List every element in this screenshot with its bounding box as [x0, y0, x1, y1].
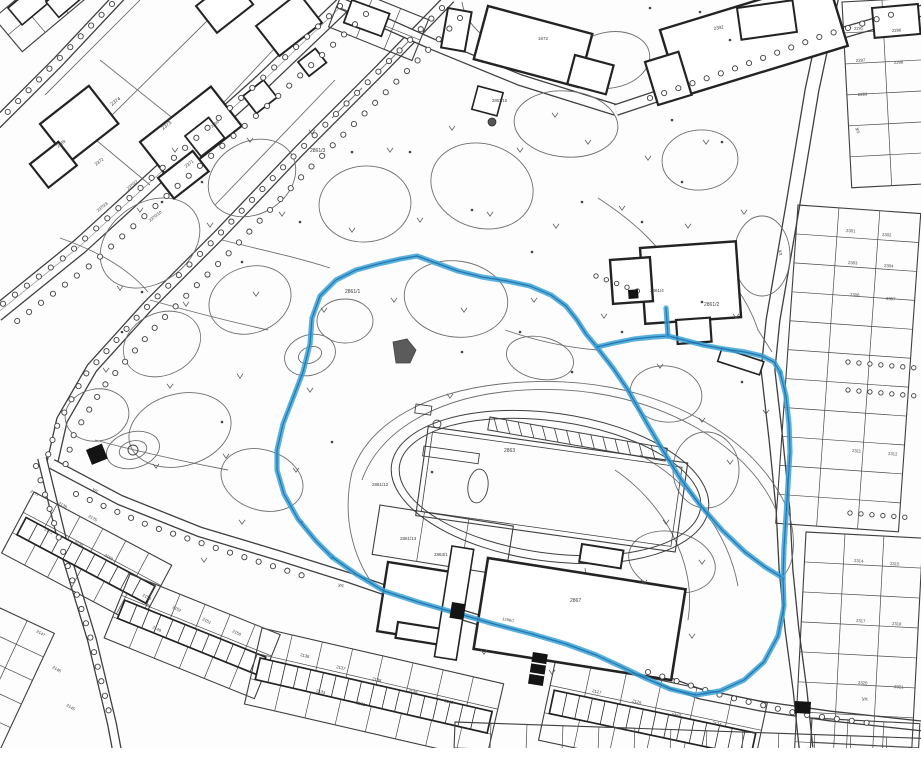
tree-icon [123, 359, 128, 364]
tree-dot-icon [141, 291, 144, 294]
tree-icon [33, 463, 38, 468]
tree-icon [68, 45, 73, 50]
black-structure [794, 701, 811, 714]
tree-icon [138, 185, 143, 190]
tree-icon [50, 437, 55, 442]
tree-dot-icon [221, 421, 224, 424]
tree-icon [676, 86, 681, 91]
parcel-number-label: 2307 [886, 296, 896, 302]
parcel-number-label: 2861/4 [650, 288, 664, 293]
parcel-number-label: 2315 [890, 561, 900, 567]
tree-icon [373, 100, 378, 105]
tree-icon [859, 512, 863, 516]
parcel-number-label: 2301 [846, 228, 856, 234]
black-structure [628, 289, 639, 299]
parcel-number-label: 2296 [892, 27, 902, 33]
parcel-number-label: 2311 [852, 448, 862, 453]
tree-icon [283, 55, 288, 60]
tree-icon [226, 251, 231, 256]
tree-icon [912, 366, 916, 370]
tree-icon [128, 515, 133, 520]
tree-icon [404, 68, 409, 73]
tree-icon [62, 282, 67, 287]
tree-icon [270, 564, 275, 569]
parcel-number-label: 2861/2 [704, 302, 720, 308]
parcel-number-label: 2304 [884, 263, 894, 269]
tree-icon [890, 392, 894, 396]
tree-icon [152, 325, 157, 330]
tree-icon [320, 153, 325, 158]
tree-icon [205, 272, 210, 277]
tree-icon [87, 497, 92, 502]
tree-icon [95, 664, 100, 669]
tree-icon [363, 11, 368, 16]
tree-icon [12, 292, 17, 297]
tree-icon [341, 32, 346, 37]
tree-dot-icon [701, 301, 704, 304]
tree-icon [253, 113, 258, 118]
tree-icon [142, 521, 147, 526]
tree-icon [298, 73, 303, 78]
tree-icon [124, 326, 129, 331]
tree-icon [84, 371, 89, 376]
tree-icon [397, 48, 402, 53]
tree-icon [281, 165, 286, 170]
tree-icon [819, 714, 824, 719]
tree-icon [331, 42, 336, 47]
tree-icon [5, 109, 10, 114]
tree-icon [65, 563, 70, 568]
tree-icon [352, 22, 357, 27]
tree-icon [408, 37, 413, 42]
tree-icon [315, 24, 320, 29]
tree-icon [149, 175, 154, 180]
tree-icon [775, 50, 780, 55]
tree-icon [56, 535, 61, 540]
tree-icon [846, 360, 850, 364]
tree-icon [260, 186, 265, 191]
tree-icon [337, 3, 342, 8]
tree-icon [88, 635, 93, 640]
tree-icon [197, 251, 202, 256]
tree-icon [69, 397, 74, 402]
tree-icon [604, 278, 608, 282]
tree-dot-icon [671, 119, 674, 122]
tree-icon [351, 121, 356, 126]
tree-icon [309, 164, 314, 169]
tree-icon [209, 153, 214, 158]
tree-icon [171, 155, 176, 160]
tree-icon [120, 234, 125, 239]
tree-icon [326, 14, 331, 19]
tree-icon [106, 708, 111, 713]
tree-icon [341, 132, 346, 137]
tree-icon [42, 492, 47, 497]
tree-icon [879, 363, 883, 367]
tree-icon [288, 186, 293, 191]
tree-icon [94, 226, 99, 231]
tree-icon [236, 240, 241, 245]
tree-icon [0, 301, 5, 306]
tree-icon [187, 262, 192, 267]
tree-icon [50, 291, 55, 296]
tree-icon [155, 294, 160, 299]
parcel-number-label: 2863/1 [434, 552, 448, 557]
tree-icon [218, 230, 223, 235]
tree-icon [890, 364, 894, 368]
tree-icon [153, 203, 158, 208]
tree-icon [103, 382, 108, 387]
tree-dot-icon [581, 201, 584, 204]
tree-icon [71, 246, 76, 251]
tree-dot-icon [699, 11, 702, 14]
tree-icon [208, 241, 213, 246]
tree-icon [488, 118, 496, 126]
tree-icon [63, 461, 68, 466]
tree-icon [239, 95, 244, 100]
tree-icon [94, 360, 99, 365]
tree-icon [97, 254, 102, 259]
tree-icon [287, 83, 292, 88]
tree-icon [746, 61, 751, 66]
tree-icon [74, 273, 79, 278]
tree-icon [645, 669, 650, 674]
tree-icon [250, 85, 255, 90]
building-footprint [737, 0, 797, 39]
tree-icon [171, 531, 176, 536]
utility-building [628, 289, 639, 299]
tree-icon [24, 283, 29, 288]
tree-icon [625, 285, 629, 289]
tree-icon [102, 693, 107, 698]
tree-icon [104, 349, 109, 354]
tree-dot-icon [571, 371, 574, 374]
tree-dot-icon [331, 441, 334, 444]
tree-icon [164, 193, 169, 198]
tree-icon [183, 145, 188, 150]
tree-icon [731, 696, 736, 701]
tree-dot-icon [351, 151, 354, 154]
tree-icon [166, 283, 171, 288]
parcel-number-label: 2861/10 [492, 98, 508, 103]
tree-icon [60, 256, 65, 261]
tree-icon [849, 718, 854, 723]
tree-icon [265, 103, 270, 108]
tree-icon [294, 44, 299, 49]
tree-icon [674, 678, 679, 683]
tree-icon [26, 88, 31, 93]
tree-icon [127, 195, 132, 200]
tree-dot-icon [641, 221, 644, 224]
tree-icon [194, 135, 199, 140]
parcel-number-label: ул. [854, 127, 861, 135]
tree-icon [95, 394, 100, 399]
tree-icon [261, 75, 266, 80]
tree-dot-icon [161, 201, 164, 204]
tree-icon [868, 362, 872, 366]
tree-icon [761, 703, 766, 708]
tree-icon [175, 183, 180, 188]
tree-icon [662, 90, 667, 95]
tree-icon [901, 393, 905, 397]
tree-icon [418, 27, 423, 32]
tree-icon [365, 80, 370, 85]
parcel-number-label: 2306 [850, 292, 860, 298]
tree-dot-icon [409, 151, 412, 154]
tree-icon [116, 206, 121, 211]
tree-icon [229, 219, 234, 224]
tree-icon [429, 16, 434, 21]
tree-icon [439, 5, 444, 10]
tree-icon [215, 261, 220, 266]
scan-bottom-margin [0, 748, 921, 768]
tree-icon [231, 133, 236, 138]
tree-icon [320, 52, 325, 57]
tree-icon [83, 621, 88, 626]
tree-icon [857, 361, 861, 365]
tree-icon [845, 25, 850, 30]
tree-icon [62, 410, 67, 415]
tree-icon [197, 163, 202, 168]
parcel-number-label: 2861/1 [345, 289, 361, 295]
tree-icon [846, 388, 850, 392]
tree-icon [386, 58, 391, 63]
tree-dot-icon [121, 331, 124, 334]
tree-icon [78, 34, 83, 39]
tree-icon [864, 720, 869, 725]
tree-icon [114, 337, 119, 342]
tree-icon [249, 197, 254, 202]
tree-icon [660, 674, 665, 679]
parcel-number-label: 2861/12 [372, 482, 389, 487]
tree-icon [47, 506, 52, 511]
tree-icon [330, 143, 335, 148]
tree-dot-icon [471, 209, 474, 212]
tree-icon [415, 58, 420, 63]
tree-icon [160, 165, 165, 170]
tree-icon [131, 224, 136, 229]
tree-icon [299, 175, 304, 180]
tree-icon [879, 391, 883, 395]
tree-icon [27, 309, 32, 314]
tree-icon [276, 93, 281, 98]
tree-icon [105, 216, 110, 221]
parcel-number-label: 2299 [858, 91, 868, 97]
tree-icon [323, 122, 328, 127]
parcel-number-label: 2318 [892, 621, 902, 627]
tree-icon [426, 47, 431, 52]
parcel-number-label: 2298 [894, 59, 904, 65]
tree-icon [857, 389, 861, 393]
tree-dot-icon [461, 351, 464, 354]
tree-icon [79, 606, 84, 611]
parcel-number-label: 2302 [882, 232, 892, 238]
parcel-number-label: 2303 [848, 260, 858, 266]
tree-icon [355, 90, 360, 95]
tree-icon [73, 491, 78, 496]
tree-icon [36, 274, 41, 279]
tree-icon [688, 683, 693, 688]
cadastral-map-image: 2861/12861/32861/22861/428632861/122861/… [0, 0, 921, 768]
tree-icon [257, 218, 262, 223]
tree-icon [870, 513, 874, 517]
tree-icon [242, 123, 247, 128]
tree-icon [848, 511, 852, 515]
building-footprint [640, 241, 741, 324]
tree-icon [892, 514, 896, 518]
tree-icon [173, 304, 178, 309]
tree-icon [176, 273, 181, 278]
tree-icon [199, 541, 204, 546]
tree-icon [647, 95, 652, 100]
tree-icon [247, 229, 252, 234]
tree-icon [89, 23, 94, 28]
tree-icon [436, 37, 441, 42]
tree-dot-icon [431, 471, 434, 474]
tree-icon [834, 716, 839, 721]
tree-icon [142, 214, 147, 219]
tree-icon [76, 384, 81, 389]
tree-icon [775, 706, 780, 711]
tree-icon [305, 34, 310, 39]
tree-icon [901, 365, 905, 369]
parcel-number-label: 2321 [894, 684, 904, 690]
tree-icon [74, 592, 79, 597]
tree-icon [156, 526, 161, 531]
tree-icon [690, 81, 695, 86]
parcel-number-label: 2314 [854, 558, 864, 564]
tree-dot-icon [299, 221, 302, 224]
tree-icon [817, 34, 822, 39]
tree-dot-icon [741, 381, 744, 384]
parcel-number-label: ул. [777, 250, 783, 257]
tree-icon [888, 12, 893, 17]
tree-icon [47, 66, 52, 71]
tree-icon [115, 509, 120, 514]
tree-icon [142, 337, 147, 342]
tree-icon [134, 315, 139, 320]
tree-icon [57, 55, 62, 60]
parcel-number-label: 1672 [538, 36, 549, 41]
tree-icon [299, 573, 304, 578]
tree-icon [912, 394, 916, 398]
parcel-number-label: 2320 [858, 680, 868, 686]
tree-icon [790, 710, 795, 715]
tree-icon [868, 390, 872, 394]
tree-icon [272, 65, 277, 70]
tree-icon [71, 433, 76, 438]
parcel-number-label: 2295 [854, 25, 864, 31]
tree-icon [99, 679, 104, 684]
tree-dot-icon [201, 181, 204, 184]
tree-icon [761, 55, 766, 60]
parcel-number-label: 2861/13 [400, 536, 417, 541]
tree-icon [213, 545, 218, 550]
tree-icon [457, 15, 462, 20]
tree-icon [278, 196, 283, 201]
tree-dot-icon [729, 39, 732, 42]
tree-icon [113, 370, 118, 375]
tree-dot-icon [649, 7, 652, 10]
tree-icon [36, 77, 41, 82]
tree-icon [52, 521, 57, 526]
parcel-number-label: ул. [862, 696, 869, 703]
tree-icon [132, 348, 137, 353]
tree-icon [746, 699, 751, 704]
tree-icon [91, 650, 96, 655]
tree-icon [242, 555, 247, 560]
tree-icon [285, 568, 290, 573]
tree-icon [239, 208, 244, 213]
parcel-number-label: 2317 [856, 618, 866, 624]
tree-icon [291, 154, 296, 159]
utility-building [794, 701, 811, 714]
parcel-number-label: 2297 [856, 57, 866, 63]
tree-icon [881, 513, 885, 517]
tree-icon [803, 40, 808, 45]
utility-building [449, 602, 465, 620]
tree-icon [227, 105, 232, 110]
tree-icon [447, 26, 452, 31]
tree-icon [185, 536, 190, 541]
tree-icon [46, 452, 51, 457]
tree-icon [394, 79, 399, 84]
tree-icon [38, 478, 43, 483]
tree-icon [15, 318, 20, 323]
tree-icon [99, 12, 104, 17]
tree-icon [270, 176, 275, 181]
tree-icon [614, 281, 618, 285]
tree-icon [333, 111, 338, 116]
black-structure [449, 602, 465, 620]
scanned-map-page: 2861/12861/32861/22861/428632861/122861/… [0, 0, 921, 768]
tree-icon [83, 236, 88, 241]
tree-dot-icon [721, 141, 724, 144]
tree-icon [789, 45, 794, 50]
tree-icon [227, 550, 232, 555]
parcel-number-label: 2863 [504, 448, 515, 454]
building-footprint [872, 4, 920, 38]
parcel-number-label: 2867 [570, 598, 581, 604]
tree-icon [302, 143, 307, 148]
parcel-number-label: 2312 [888, 451, 898, 457]
tree-icon [87, 407, 92, 412]
tree-icon [186, 173, 191, 178]
tree-icon [101, 503, 106, 508]
parcel-number-label: 2861/3 [310, 148, 326, 154]
tree-icon [61, 549, 66, 554]
tree-icon [109, 244, 114, 249]
tree-icon [55, 423, 60, 428]
tree-icon [718, 71, 723, 76]
tree-dot-icon [681, 181, 684, 184]
tree-icon [38, 300, 43, 305]
tree-icon [383, 90, 388, 95]
tree-icon [704, 76, 709, 81]
tree-icon [194, 283, 199, 288]
tree-icon [184, 293, 189, 298]
tree-icon [162, 314, 167, 319]
tree-icon [67, 447, 72, 452]
tree-icon [48, 265, 53, 270]
tree-icon [86, 264, 91, 269]
tree-icon [16, 98, 21, 103]
tree-icon [831, 30, 836, 35]
tree-icon [256, 559, 261, 564]
tree-icon [109, 1, 114, 6]
tree-icon [344, 101, 349, 106]
tree-dot-icon [519, 331, 522, 334]
